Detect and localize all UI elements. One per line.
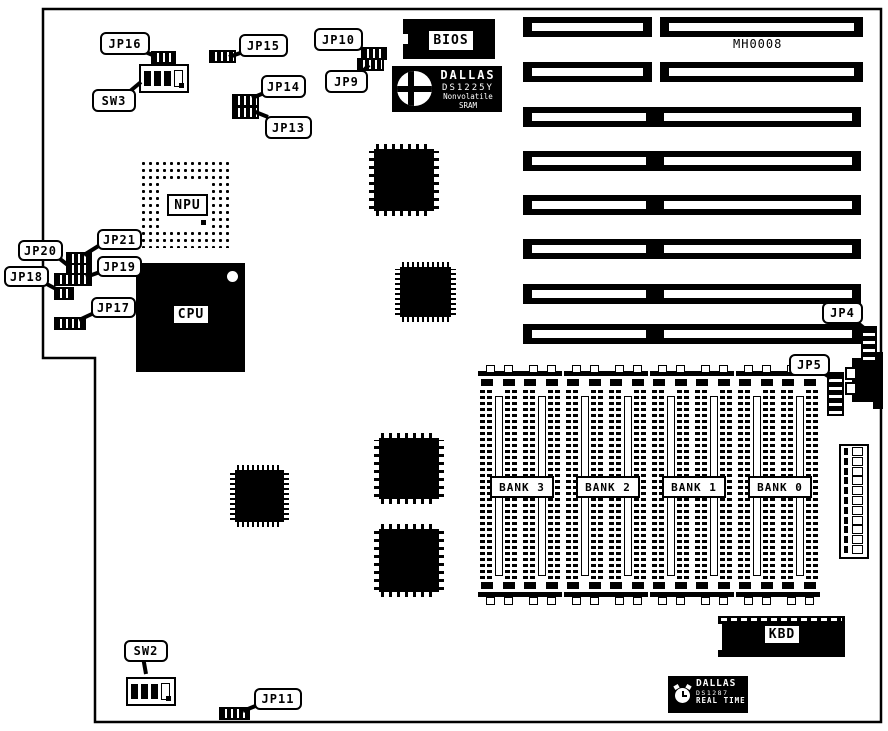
slot-contact (532, 23, 643, 31)
qfp-pins-top (381, 433, 437, 438)
power-pin-socket (852, 545, 863, 554)
power-pin-clip (844, 477, 848, 484)
simm-tab (633, 365, 642, 373)
part-number: MH0008 (733, 37, 782, 51)
power-pin-clip (844, 507, 848, 514)
qfp-pins-right (434, 151, 439, 209)
qfp-pins-right (439, 440, 444, 497)
simm-tab (504, 597, 513, 605)
power-pin-socket (852, 447, 863, 456)
callout-jp17: JP17 (91, 297, 136, 318)
callout-jp14: JP14 (261, 75, 306, 98)
qfp-pins-left (395, 269, 400, 315)
power-pin-socket (852, 525, 863, 534)
slot-contact (532, 113, 646, 121)
slot-contact (664, 113, 852, 121)
power-pin-socket (852, 535, 863, 544)
callout-sw3: SW3 (92, 89, 136, 112)
simm-tab (615, 365, 624, 373)
qfp-pins-top (381, 524, 437, 529)
callout-sw2: SW2 (124, 640, 168, 662)
dallas-sram-brand: DALLAS (436, 69, 500, 83)
simm-clip (546, 582, 558, 589)
jumper-block-jp4 (861, 326, 877, 362)
callout-jp9: JP9 (325, 70, 368, 93)
simm-clip (675, 582, 687, 589)
motherboard-diagram: MH0008 BIOS DALLAS DS1225Y Nonvolatile S… (0, 0, 888, 731)
isa-slot-long (655, 151, 861, 171)
simm-tab (676, 365, 685, 373)
isa-slot-long (655, 324, 861, 344)
bank-label: BANK 2 (576, 476, 640, 498)
bank-label: BANK 3 (490, 476, 554, 498)
simm-tab (547, 365, 556, 373)
simm-tab (658, 597, 667, 605)
simm-clip (481, 379, 493, 386)
kbd-notch (718, 624, 722, 650)
jumper-block-jp18 (54, 287, 74, 300)
power-pin-socket (852, 516, 863, 525)
bank-label: BANK 1 (662, 476, 726, 498)
sw2-dip-switch (126, 677, 176, 706)
jumper-block-jp17 (54, 317, 86, 330)
simm-tab (744, 365, 753, 373)
simm-tab (676, 597, 685, 605)
qfp-pins-left (374, 531, 379, 590)
simm-clip (610, 379, 622, 386)
isa-slot-short (523, 107, 655, 127)
power-pin-clip (844, 526, 848, 533)
qfp-pins-top (237, 465, 282, 470)
jumper-block-jp11 (219, 707, 250, 720)
isa-slot-long (655, 107, 861, 127)
simm-clip (739, 379, 751, 386)
slot-contact (532, 290, 646, 298)
qfp-chip (379, 438, 439, 499)
slot-contact (664, 245, 852, 253)
qfp-pins-top (402, 262, 449, 267)
simm-clip (632, 582, 644, 589)
simm-clip (589, 582, 601, 589)
simm-clip (782, 582, 794, 589)
qfp-chip (374, 149, 434, 211)
simm-clip (804, 582, 816, 589)
simm-clip (696, 582, 708, 589)
jumper-block-jp13 (232, 106, 259, 119)
callout-jp18: JP18 (4, 266, 49, 287)
qfp-pins-right (439, 531, 444, 590)
simm-tab (572, 365, 581, 373)
simm-clip (739, 582, 751, 589)
power-pin-socket (852, 506, 863, 515)
qfp-pins-left (230, 472, 235, 520)
isa-slot-short (523, 17, 652, 37)
bios-label: BIOS (427, 29, 475, 52)
power-pin-clip (844, 487, 848, 494)
simm-tab (529, 597, 538, 605)
power-pin-clip (844, 517, 848, 524)
simm-tab (615, 597, 624, 605)
simm-tab (719, 597, 728, 605)
power-connector (839, 444, 869, 559)
dallas-rtc-desc: REAL TIME (696, 697, 746, 706)
callout-jp4: JP4 (822, 302, 863, 324)
power-pin-socket (852, 486, 863, 495)
power-pin-clip (844, 536, 848, 543)
slot-contact (532, 245, 646, 253)
callout-jp20: JP20 (18, 240, 63, 261)
isa-slot-short (523, 151, 655, 171)
callout-jp5: JP5 (789, 354, 830, 376)
keyboard-din-connector (852, 358, 882, 402)
dallas-logo-icon (397, 71, 432, 106)
qfp-pins-left (374, 440, 379, 497)
qfp-chip (400, 267, 451, 317)
power-pin-clip (844, 468, 848, 475)
simm-clip (589, 379, 601, 386)
din-tab (845, 382, 857, 395)
isa-slot-short (523, 62, 652, 82)
simm-clip (804, 379, 816, 386)
simm-tab (805, 597, 814, 605)
isa-slot-long (655, 239, 861, 259)
qfp-chip (379, 529, 439, 592)
isa-slot-short (523, 284, 655, 304)
simm-clip (782, 379, 794, 386)
simm-tab (701, 365, 710, 373)
simm-clip (718, 379, 730, 386)
alarm-clock-icon (674, 685, 692, 703)
isa-slot-long (655, 195, 861, 215)
simm-tab (590, 597, 599, 605)
callout-jp13: JP13 (265, 116, 312, 139)
jumper-block-jp15 (209, 50, 236, 63)
isa-slot-long (660, 62, 863, 82)
qfp-chip (235, 470, 284, 522)
cpu-chip: CPU (136, 263, 245, 372)
cpu-label: CPU (174, 306, 208, 323)
power-pin-socket (852, 457, 863, 466)
simm-tab (633, 597, 642, 605)
simm-clip (503, 582, 515, 589)
callout-jp16: JP16 (100, 32, 150, 55)
qfp-pins-bottom (402, 317, 449, 322)
bank-label: BANK 0 (748, 476, 812, 498)
qfp-pins-top (376, 144, 432, 149)
simm-clip (653, 379, 665, 386)
simm-tab (719, 365, 728, 373)
simm-tab (787, 597, 796, 605)
isa-slot-long (660, 17, 863, 37)
simm-clip (524, 582, 536, 589)
kbd-pins (721, 618, 842, 621)
callout-jp15: JP15 (239, 34, 288, 57)
simm-clip (675, 379, 687, 386)
slot-contact (532, 68, 643, 76)
jumper-block-jp16 (151, 51, 176, 64)
simm-clip (632, 379, 644, 386)
qfp-pins-bottom (237, 522, 282, 527)
power-pin-socket (852, 496, 863, 505)
jumper-block-jp5 (827, 372, 844, 416)
slot-contact (664, 157, 852, 165)
dallas-sram-chip: DALLAS DS1225Y Nonvolatile SRAM (392, 66, 502, 112)
power-pin-clip (844, 497, 848, 504)
simm-tab (744, 597, 753, 605)
simm-tab (547, 597, 556, 605)
bios-chip-notch (403, 34, 408, 44)
simm-clip (481, 582, 493, 589)
jumper-block-jp19 (54, 273, 92, 286)
simm-clip (696, 379, 708, 386)
power-pin-clip (844, 448, 848, 455)
simm-clip (653, 582, 665, 589)
simm-tab (590, 365, 599, 373)
simm-tab (701, 597, 710, 605)
slot-contact (664, 330, 852, 338)
slot-contact (532, 330, 646, 338)
npu-label: NPU (167, 194, 208, 216)
dallas-rtc-chip: DALLAS DS1287 REAL TIME (668, 676, 748, 713)
qfp-pins-bottom (381, 592, 437, 597)
simm-clip (761, 582, 773, 589)
simm-clip (610, 582, 622, 589)
dallas-sram-desc: Nonvolatile SRAM (436, 93, 500, 110)
simm-tab (658, 365, 667, 373)
simm-tab (572, 597, 581, 605)
isa-slot-short (523, 239, 655, 259)
power-pin-socket (852, 476, 863, 485)
isa-slot-long (655, 284, 861, 304)
npu-pin1-dot (201, 220, 206, 225)
slot-contact (664, 201, 852, 209)
slot-contact (664, 290, 852, 298)
slot-contact (532, 157, 646, 165)
simm-clip (503, 379, 515, 386)
isa-slot-short (523, 324, 655, 344)
simm-tab (486, 365, 495, 373)
simm-tab (529, 365, 538, 373)
power-pin-clip (844, 458, 848, 465)
slot-contact (669, 68, 854, 76)
callout-jp10: JP10 (314, 28, 363, 51)
simm-clip (567, 379, 579, 386)
callout-jp19: JP19 (97, 256, 142, 277)
simm-clip (524, 379, 536, 386)
qfp-pins-bottom (376, 211, 432, 216)
isa-slot-short (523, 195, 655, 215)
cpu-pin1-circle (227, 271, 238, 282)
power-pin-socket (852, 467, 863, 476)
sw3-dip-switch (139, 64, 189, 93)
slot-contact (532, 201, 646, 209)
din-tab (845, 367, 857, 380)
qfp-pins-bottom (381, 499, 437, 504)
qfp-pins-right (284, 472, 289, 520)
qfp-pins-right (451, 269, 456, 315)
simm-tab (762, 597, 771, 605)
simm-tab (486, 597, 495, 605)
simm-clip (567, 582, 579, 589)
callout-jp11: JP11 (254, 688, 302, 710)
simm-tab (762, 365, 771, 373)
power-pin-clip (844, 546, 848, 553)
qfp-pins-left (369, 151, 374, 209)
kbd-label: KBD (764, 625, 800, 644)
slot-contact (669, 23, 854, 31)
simm-clip (718, 582, 730, 589)
simm-tab (504, 365, 513, 373)
simm-clip (546, 379, 558, 386)
callout-jp21: JP21 (97, 229, 142, 250)
simm-clip (761, 379, 773, 386)
